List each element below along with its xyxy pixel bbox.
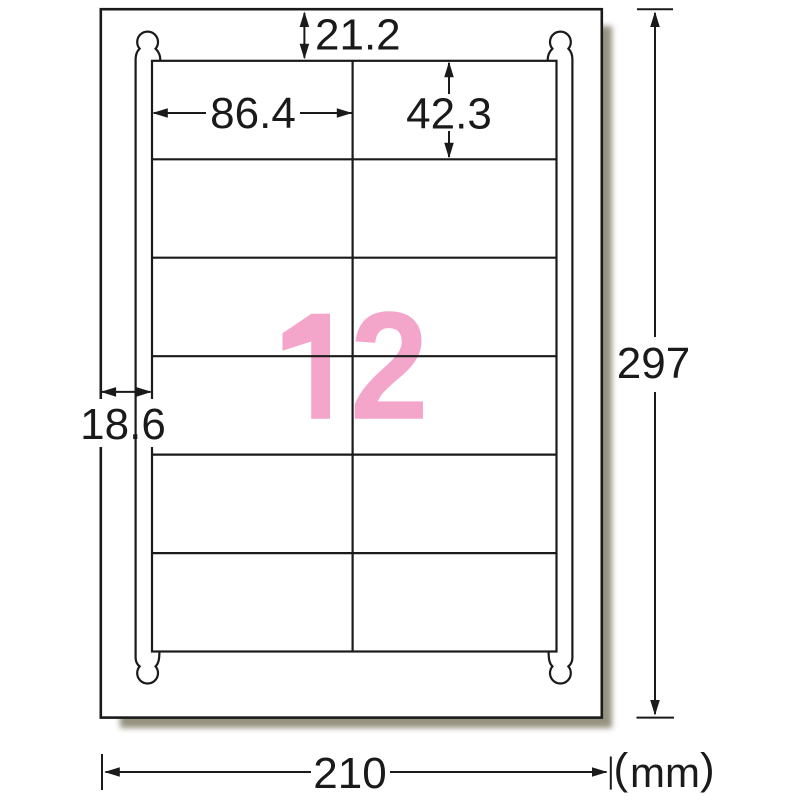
svg-text:(: ( (614, 745, 629, 794)
svg-text:2: 2 (350, 280, 429, 452)
svg-text:21.2: 21.2 (315, 11, 401, 60)
svg-text:86.4: 86.4 (210, 89, 296, 138)
svg-text:mm: mm (630, 749, 700, 796)
svg-text:): ) (700, 745, 715, 794)
svg-text:210: 210 (313, 749, 386, 798)
svg-text:297: 297 (617, 339, 690, 388)
svg-text:18.6: 18.6 (80, 400, 166, 449)
svg-text:42.3: 42.3 (406, 90, 492, 139)
